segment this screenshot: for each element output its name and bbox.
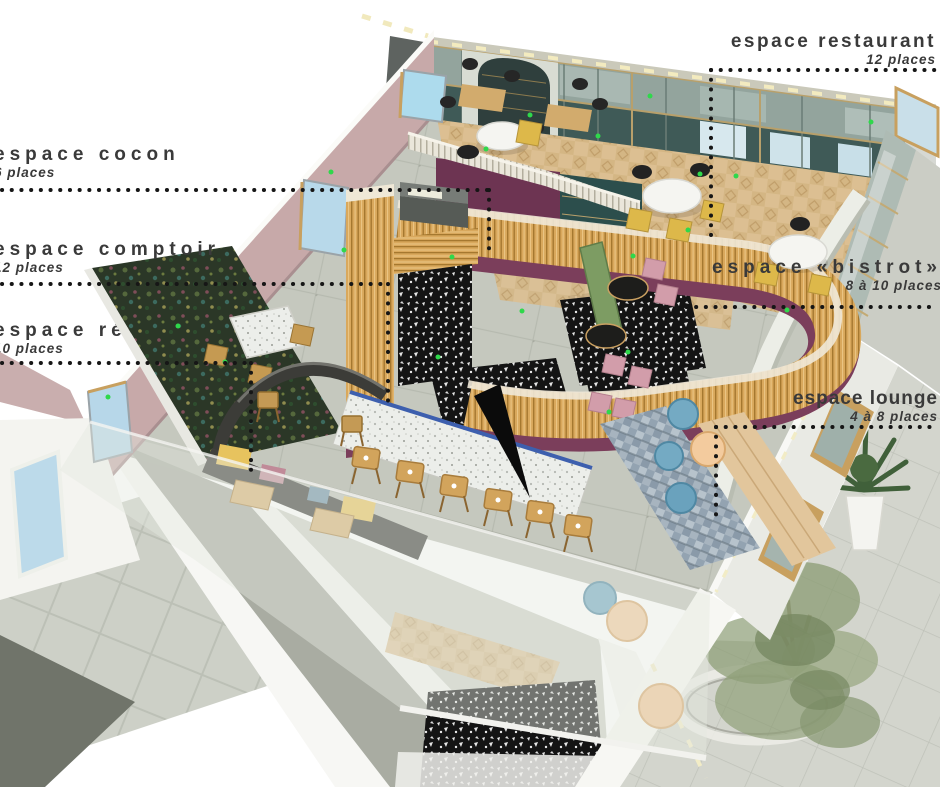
annotation-cocon: espace cocon 6 places (0, 144, 180, 180)
annotation-comptoir-places: 12 places (0, 260, 220, 275)
pouf-peach (691, 432, 725, 466)
window-4 (12, 452, 66, 576)
pouf-blue (668, 399, 698, 429)
annotation-lounge: espace lounge 4 à 8 places (793, 388, 938, 424)
pouf-blue (655, 442, 683, 470)
annotation-bistrot: espace «bistrot» 8 à 10 places (712, 257, 940, 293)
annotation-restaurant-title: espace restaurant (731, 31, 936, 52)
annotation-cocon-places: 6 places (0, 165, 180, 180)
annotation-comptoir-title: espace comptoir (0, 239, 220, 260)
pouf-blue (666, 483, 696, 513)
annotation-restaurant: espace restaurant 12 places (731, 31, 936, 67)
window-1 (400, 70, 446, 122)
annotation-lounge-places: 4 à 8 places (793, 409, 938, 424)
annotation-comptoir: espace comptoir 12 places (0, 239, 220, 275)
comptoir-doorway (398, 264, 472, 386)
annotation-restaurant-places: 12 places (731, 52, 936, 67)
annotation-lounge-title: espace lounge (793, 388, 938, 409)
annotation-cocon-title: espace cocon (0, 144, 180, 165)
annotation-bistrot-places: 8 à 10 places (712, 278, 940, 293)
axonometric-floorplan-scene: espace réfectoire 10 places (0, 0, 940, 787)
annotation-bistrot-title: espace «bistrot» (712, 257, 940, 278)
